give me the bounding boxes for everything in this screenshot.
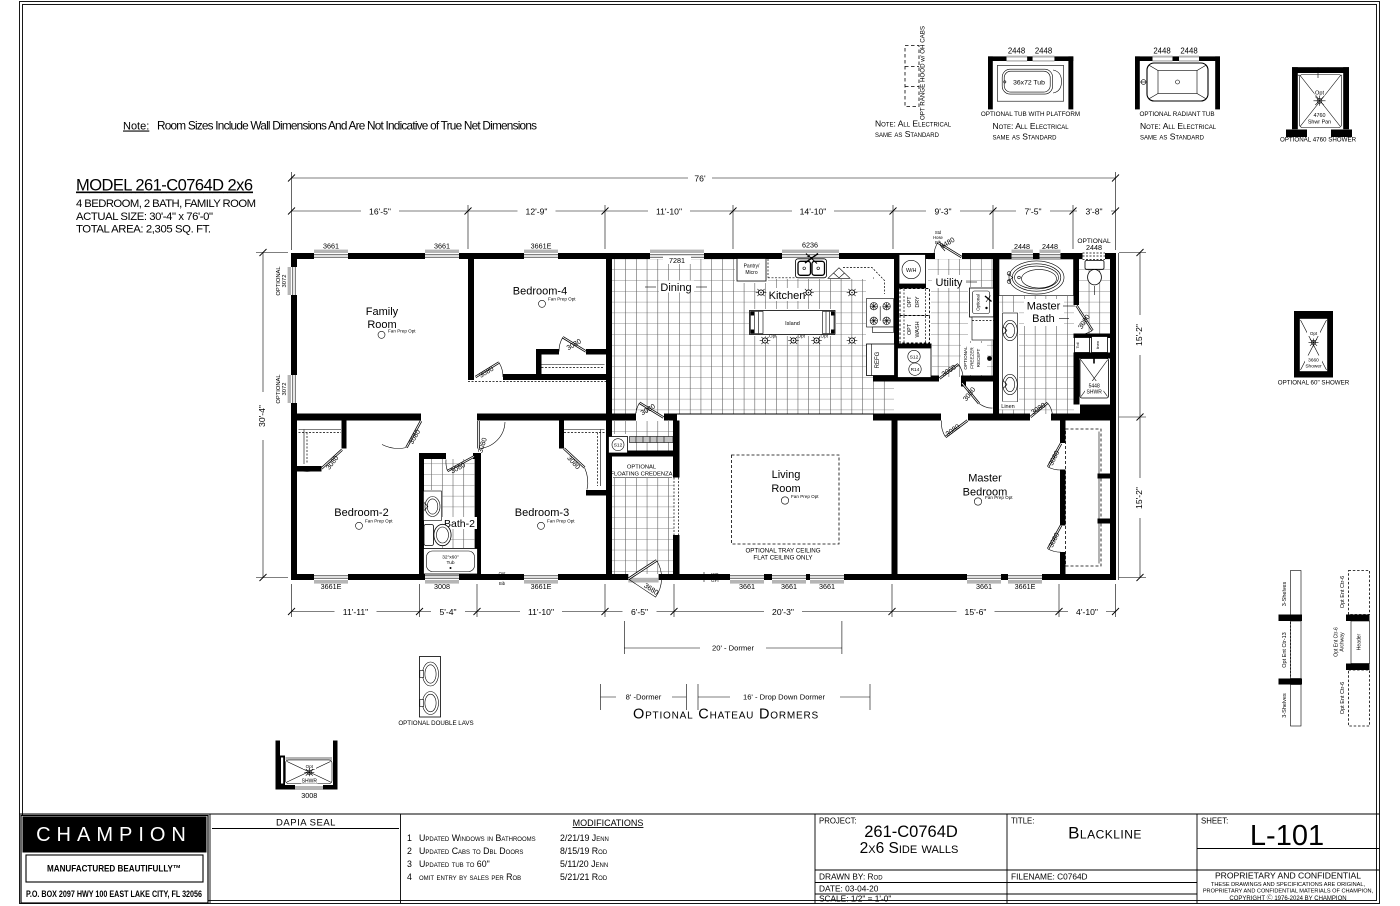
svg-text:Fan Prep Opt: Fan Prep Opt <box>985 495 1013 500</box>
svg-text:Updated Windows in Bathrooms: Updated Windows in Bathrooms <box>419 833 536 843</box>
svg-text:3-Shelves: 3-Shelves <box>1282 582 1288 607</box>
svg-text:R14: R14 <box>911 367 920 373</box>
svg-text:Linen: Linen <box>1001 404 1014 410</box>
svg-text:12'-9": 12'-9" <box>526 207 548 217</box>
svg-text:Shower: Shower <box>1305 364 1322 370</box>
svg-text:OPTIONAL 4760 SHOWER: OPTIONAL 4760 SHOWER <box>1280 137 1357 144</box>
svg-text:Bath: Bath <box>1032 313 1055 325</box>
svg-text:DATE: 03-04-20: DATE: 03-04-20 <box>819 884 879 894</box>
svg-text:Opt: Opt <box>798 334 806 339</box>
svg-text:Toil: Toil <box>1075 342 1080 348</box>
svg-text:20'-3": 20'-3" <box>772 607 794 617</box>
svg-text:5'-4": 5'-4" <box>439 607 456 617</box>
svg-text:Note: All Electrical: Note: All Electrical <box>875 119 952 129</box>
svg-text:15'-2": 15'-2" <box>1134 487 1144 509</box>
svg-text:Bib: Bib <box>499 581 506 586</box>
svg-text:same as Standard: same as Standard <box>875 129 940 139</box>
svg-text:L-101: L-101 <box>1250 820 1324 852</box>
svg-text:3661E: 3661E <box>1015 582 1036 591</box>
svg-text:Opt: Opt <box>1315 91 1324 97</box>
svg-text:OPTIONAL 60" SHOWER: OPTIONAL 60" SHOWER <box>1278 380 1350 387</box>
svg-text:15'-2": 15'-2" <box>1134 324 1144 346</box>
svg-text:Opt Ent Ctr-6: Opt Ent Ctr-6 <box>1340 682 1346 714</box>
svg-text:WASH: WASH <box>915 321 921 337</box>
svg-text:16' - Drop Down Dormer: 16' - Drop Down Dormer <box>743 693 826 702</box>
svg-text:3661: 3661 <box>739 582 755 591</box>
svg-text:Island: Island <box>785 321 800 327</box>
svg-text:3661: 3661 <box>976 582 992 591</box>
svg-text:SHWR: SHWR <box>302 779 318 785</box>
svg-text:16'-5": 16'-5" <box>369 207 391 217</box>
svg-text:3'-8": 3'-8" <box>1085 207 1102 217</box>
svg-text:Bedroom-2: Bedroom-2 <box>334 507 388 519</box>
svg-text:FLAT CEILING ONLY: FLAT CEILING ONLY <box>753 555 812 562</box>
svg-text:8' -Dormer: 8' -Dormer <box>626 693 662 702</box>
svg-text:36x72 Tub: 36x72 Tub <box>1013 80 1045 87</box>
svg-text:3661E: 3661E <box>531 242 552 251</box>
svg-text:Fan Prep Opt: Fan Prep Opt <box>365 519 393 524</box>
svg-text:Blackline: Blackline <box>1068 824 1142 843</box>
svg-text:2x6 Side walls: 2x6 Side walls <box>860 840 959 857</box>
svg-text:30'-4": 30'-4" <box>257 405 267 427</box>
svg-text:76': 76' <box>694 174 706 184</box>
svg-text:TOTAL AREA: 2,305 SQ. FT.: TOTAL AREA: 2,305 SQ. FT. <box>76 224 211 236</box>
svg-text:3661: 3661 <box>819 582 835 591</box>
svg-text:3-Shelves: 3-Shelves <box>1282 693 1288 718</box>
svg-text:OPTIONAL RADIANT TUB: OPTIONAL RADIANT TUB <box>1139 111 1214 118</box>
svg-text:omit entry by sales per Rob: omit entry by sales per Rob <box>419 872 521 882</box>
svg-text:OPT: OPT <box>907 296 913 308</box>
svg-text:Kitchen: Kitchen <box>769 290 806 302</box>
svg-text:32"x60": 32"x60" <box>442 555 459 561</box>
svg-text:5/21/21 Rod: 5/21/21 Rod <box>560 872 608 882</box>
svg-text:4 BEDROOM, 2 BATH, FAMILY ROOM: 4 BEDROOM, 2 BATH, FAMILY ROOM <box>76 198 256 210</box>
svg-text:7'-5": 7'-5" <box>1024 207 1041 217</box>
svg-text:Family: Family <box>366 306 399 318</box>
svg-text:Archway: Archway <box>1340 632 1346 652</box>
svg-text:3072: 3072 <box>282 275 288 288</box>
svg-text:W/H: W/H <box>906 268 917 274</box>
svg-text:DRAWN BY: Rod: DRAWN BY: Rod <box>819 872 883 882</box>
svg-text:6236: 6236 <box>802 241 818 250</box>
svg-text:261-C0764D: 261-C0764D <box>864 823 958 841</box>
svg-text:3072: 3072 <box>282 383 288 396</box>
svg-text:Note:: Note: <box>123 121 149 133</box>
svg-text:3008: 3008 <box>434 582 450 591</box>
svg-text:11'-10": 11'-10" <box>656 207 682 217</box>
svg-text:Optional Chateau Dormers: Optional Chateau Dormers <box>633 707 819 723</box>
svg-text:OPT: OPT <box>907 323 913 335</box>
svg-text:DRY: DRY <box>915 296 921 308</box>
svg-text:CHAMPION: CHAMPION <box>36 824 192 846</box>
svg-text:Fan Prep Opt: Fan Prep Opt <box>388 329 416 334</box>
svg-text:Updated tub to 60": Updated tub to 60" <box>419 859 490 869</box>
svg-text:Note: All Electrical: Note: All Electrical <box>1140 121 1217 131</box>
svg-text:MODEL 261-C0764D 2x6: MODEL 261-C0764D 2x6 <box>76 177 253 195</box>
svg-text:Updated Cabs to Dbl Doors: Updated Cabs to Dbl Doors <box>419 846 523 856</box>
svg-text:RECEPT: RECEPT <box>976 348 981 367</box>
svg-text:REFG: REFG <box>875 351 881 368</box>
svg-text:20' - Dormer: 20' - Dormer <box>712 644 754 653</box>
svg-text:PROPRIETARY AND CONFIDENTIAL M: PROPRIETARY AND CONFIDENTIAL MATERIALS O… <box>1203 889 1374 895</box>
svg-text:Optional: Optional <box>976 294 981 311</box>
svg-text:FLOATING CREDENZA: FLOATING CREDENZA <box>610 472 672 478</box>
svg-text:DAPIA SEAL: DAPIA SEAL <box>276 818 336 829</box>
svg-text:7281: 7281 <box>669 256 685 265</box>
svg-text:FILENAME: C0764D: FILENAME: C0764D <box>1011 872 1088 882</box>
svg-text:Note: All Electrical: Note: All Electrical <box>993 121 1070 131</box>
svg-text:OPTIONAL TRAY CEILING: OPTIONAL TRAY CEILING <box>745 548 820 555</box>
svg-text:Opt: Opt <box>769 334 777 339</box>
svg-text:Pantry/: Pantry/ <box>744 264 760 270</box>
svg-text:MODIFICATIONS: MODIFICATIONS <box>573 818 644 828</box>
svg-text:Opt: Opt <box>821 334 829 339</box>
svg-text:Bedroom-3: Bedroom-3 <box>515 507 569 519</box>
svg-text:OPTIONAL: OPTIONAL <box>627 465 657 471</box>
svg-text:3660: 3660 <box>1308 358 1319 364</box>
svg-text:THESE DRAWINGS AND SPECIFICATI: THESE DRAWINGS AND SPECIFICATIONS ARE OR… <box>1211 882 1366 888</box>
svg-text:same as Standard: same as Standard <box>1140 132 1205 142</box>
svg-text:Micro: Micro <box>745 270 757 276</box>
svg-text:2: 2 <box>407 846 412 856</box>
svg-text:4: 4 <box>407 872 412 882</box>
svg-text:2448: 2448 <box>1042 242 1058 251</box>
svg-text:GFI: GFI <box>711 578 719 583</box>
svg-text:Dining: Dining <box>660 282 691 294</box>
svg-text:3008: 3008 <box>301 791 317 800</box>
svg-text:3661E: 3661E <box>321 582 342 591</box>
svg-text:6'-5": 6'-5" <box>631 607 648 617</box>
svg-text:WP: WP <box>711 572 718 577</box>
svg-text:3661E: 3661E <box>531 582 552 591</box>
svg-text:3661: 3661 <box>323 242 339 251</box>
svg-text:SHEET:: SHEET: <box>1201 817 1228 826</box>
svg-text:S12: S12 <box>614 443 623 449</box>
svg-text:3: 3 <box>407 859 412 869</box>
svg-text:Fan Prep Opt: Fan Prep Opt <box>791 494 819 499</box>
svg-text:Master: Master <box>1027 301 1061 313</box>
svg-text:9'-3": 9'-3" <box>934 207 951 217</box>
svg-text:OPTIONAL: OPTIONAL <box>963 346 968 370</box>
svg-text:Opt Ent Ctr-13: Opt Ent Ctr-13 <box>1282 632 1288 667</box>
svg-text:Opt: Opt <box>1310 331 1318 336</box>
svg-text:Master: Master <box>968 473 1002 485</box>
svg-text:3661: 3661 <box>781 582 797 591</box>
svg-text:Fan Prep Opt: Fan Prep Opt <box>547 519 575 524</box>
svg-text:same as Standard: same as Standard <box>993 132 1058 142</box>
svg-text:1: 1 <box>407 833 412 843</box>
svg-text:Room Sizes Include Wall Dimens: Room Sizes Include Wall Dimensions And A… <box>157 119 537 133</box>
svg-text:Tub: Tub <box>446 560 454 566</box>
svg-text:FREEZER: FREEZER <box>970 347 975 369</box>
svg-text:Opt: Opt <box>306 764 314 769</box>
svg-text:8/15/19 Rod: 8/15/19 Rod <box>560 846 608 856</box>
svg-text:Opt Ent Ctr-6: Opt Ent Ctr-6 <box>1340 576 1346 608</box>
svg-text:Utility: Utility <box>936 277 963 289</box>
svg-text:15'-6": 15'-6" <box>965 607 987 617</box>
svg-text:2448: 2448 <box>1180 47 1197 56</box>
svg-text:Header: Header <box>1357 633 1363 650</box>
svg-text:TITLE:: TITLE: <box>1011 817 1034 826</box>
svg-text:S12: S12 <box>910 355 919 361</box>
svg-text:Shwr Pan: Shwr Pan <box>1308 120 1331 126</box>
svg-text:2448: 2448 <box>1008 47 1025 56</box>
svg-text:linen: linen <box>1095 341 1100 349</box>
svg-text:SHWR: SHWR <box>1087 390 1103 396</box>
svg-text:11'-11": 11'-11" <box>343 607 368 617</box>
svg-text:OPTIONAL TUB WITH PLATFORM: OPTIONAL TUB WITH PLATFORM <box>981 111 1080 118</box>
svg-text:2448: 2448 <box>1035 47 1052 56</box>
svg-text:Living: Living <box>772 469 801 481</box>
svg-text:OPTIONAL DOUBLE LAVS: OPTIONAL DOUBLE LAVS <box>398 720 473 727</box>
svg-text:OPT RANGE HOOD w/ OH CABS: OPT RANGE HOOD w/ OH CABS <box>920 26 927 120</box>
svg-text:14'-10": 14'-10" <box>800 207 827 217</box>
svg-text:Fan Prep Opt: Fan Prep Opt <box>548 297 576 302</box>
svg-text:SCALE: 1/2" = 1'-0": SCALE: 1/2" = 1'-0" <box>819 894 891 904</box>
svg-text:PROJECT:: PROJECT: <box>819 817 857 826</box>
svg-text:11'-10": 11'-10" <box>528 607 554 617</box>
svg-text:PROPRIETARY AND CONFIDENTIAL: PROPRIETARY AND CONFIDENTIAL <box>1215 871 1361 881</box>
svg-text:5/11/20 Jenn: 5/11/20 Jenn <box>560 859 608 869</box>
svg-text:P.O. BOX 2097 HWY 100 EAST LAK: P.O. BOX 2097 HWY 100 EAST LAKE CITY, FL… <box>26 889 202 899</box>
svg-text:ACTUAL SIZE: 30'-4" x 76'-0": ACTUAL SIZE: 30'-4" x 76'-0" <box>76 211 213 223</box>
svg-text:3661: 3661 <box>434 242 450 251</box>
svg-text:2448: 2448 <box>1086 243 1102 252</box>
svg-text:2448: 2448 <box>1153 47 1170 56</box>
svg-text:2/21/19 Jenn: 2/21/19 Jenn <box>560 833 609 843</box>
svg-text:MANUFACTURED BEAUTIFULLY™: MANUFACTURED BEAUTIFULLY™ <box>47 864 181 875</box>
svg-text:4'-10": 4'-10" <box>1076 607 1098 617</box>
svg-text:4760: 4760 <box>1314 113 1326 119</box>
svg-text:COPYRIGHT Ⓒ 1976-2024 BY CHAMP: COPYRIGHT Ⓒ 1976-2024 BY CHAMPION <box>1229 894 1346 902</box>
svg-text:2448: 2448 <box>1014 242 1030 251</box>
